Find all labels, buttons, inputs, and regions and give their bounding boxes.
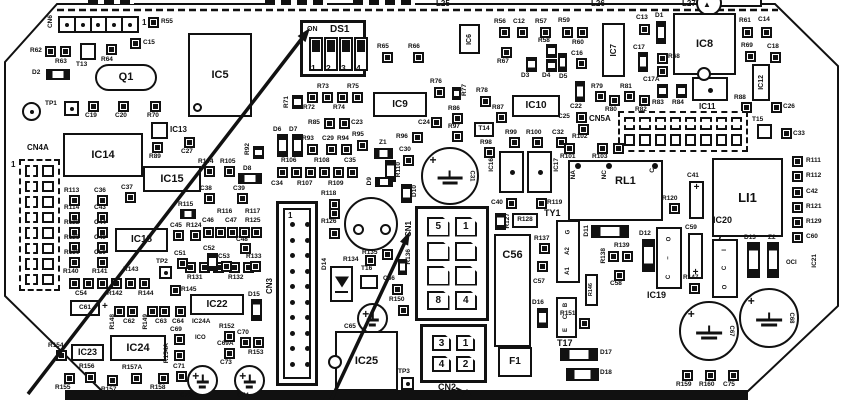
r129-label: R129 (806, 219, 822, 226)
r111 (792, 156, 803, 167)
c44-label: C44 (94, 220, 106, 227)
cn4a-pad-13 (25, 258, 38, 270)
r82-label: R82 (635, 107, 647, 114)
cn1-pin-6 (455, 266, 478, 286)
c17a-label: C17A (643, 77, 660, 84)
r142-label: R142 (107, 291, 123, 298)
r96 (412, 132, 423, 143)
r68-label: R68 (668, 54, 680, 61)
c42-label: C42 (806, 189, 818, 196)
tp2-label: TP2 (156, 259, 168, 266)
cn4a-pad-3 (25, 181, 38, 193)
rl1-na-label: NA (571, 170, 578, 179)
c71 (176, 371, 187, 382)
c57-label: C57 (533, 279, 545, 286)
r58-label: R58 (538, 38, 550, 45)
r71 (292, 95, 303, 109)
c15-label: C15 (143, 40, 155, 47)
cn1-pin-2: 1 (455, 217, 478, 237)
ic15: IC15 (143, 166, 201, 192)
r69 (745, 51, 756, 62)
ic8: IC8 (673, 13, 736, 75)
r70 (150, 101, 161, 112)
r75-label: R75 (347, 84, 359, 91)
r59 (562, 27, 573, 38)
c69-label: C69 (170, 327, 182, 334)
r111-label: R111 (806, 158, 821, 165)
blrow5 (175, 306, 186, 317)
r60 (577, 27, 588, 38)
ic19-pin-letter-3: C (666, 275, 672, 279)
cn1: 5184 (415, 206, 489, 321)
c35s (347, 167, 358, 178)
r86-label: R86 (448, 106, 460, 113)
c73 (224, 348, 235, 359)
r116-label: R116 (217, 209, 232, 216)
tp1 (22, 102, 41, 121)
cn1-pin-5 (427, 266, 450, 286)
c59-label: C59 (685, 225, 697, 232)
r93-label: R93 (302, 136, 314, 143)
c39-label: C39 (233, 186, 245, 193)
c62-label: C62 (123, 319, 135, 326)
r72 (307, 92, 318, 103)
tp2 (159, 266, 172, 279)
c50 (97, 257, 108, 268)
r56 (499, 27, 510, 38)
c65 (357, 303, 388, 334)
r74 (337, 92, 348, 103)
r107-label: R107 (297, 181, 313, 188)
r84 (676, 84, 687, 98)
c43-label: C43 (94, 205, 106, 212)
cn3-dot-4-1 (305, 284, 310, 289)
d6 (277, 134, 288, 157)
c45 (173, 230, 184, 241)
r147-label: R147 (683, 275, 699, 282)
cn4a-pad-2 (42, 165, 55, 177)
r136-label: R136 (406, 249, 413, 265)
c13 (639, 24, 650, 35)
d14 (330, 266, 353, 302)
cn5a-pad-3 (655, 117, 666, 130)
r67-label: R67 (497, 59, 509, 66)
d1 (656, 21, 666, 44)
r159-label: R159 (676, 382, 692, 389)
ds1-on-label: ON (307, 26, 318, 33)
r139 (622, 251, 633, 262)
cn4a-pad-7 (25, 212, 38, 224)
c24-label: C24 (418, 120, 430, 127)
r108b (333, 167, 344, 178)
c70-label: C70 (237, 330, 249, 337)
ty1-pin-letter-2: A2 (565, 248, 571, 256)
r129 (792, 217, 803, 228)
cn4a (19, 159, 60, 291)
mrow1 (203, 227, 214, 238)
cn4a-pad-16 (42, 274, 55, 286)
r147 (689, 283, 700, 294)
ic9-label: IC9 (392, 100, 408, 110)
c14-label: C14 (758, 17, 770, 24)
cn4a-pin1-label: 1 (11, 161, 15, 169)
ic14: IC14 (63, 133, 143, 177)
r101-label: R101 (560, 154, 576, 161)
c23-label: C23 (351, 120, 363, 127)
r67 (501, 47, 512, 58)
top-pads-left (88, 0, 134, 4)
ic5-label: IC5 (211, 70, 228, 81)
r57-label: R57 (535, 19, 547, 26)
cn3-dot-3-1 (305, 269, 310, 274)
d9-label: D9 (367, 177, 374, 185)
ic19: O–C (656, 227, 682, 289)
r148-label: R148 (110, 314, 117, 330)
d18 (566, 368, 599, 381)
r96-label: R96 (396, 134, 408, 141)
r94-label: R94 (337, 136, 349, 143)
ds1-title: DS1 (330, 24, 349, 35)
r78-label: R78 (476, 88, 488, 95)
r92 (253, 146, 264, 159)
c13-label: C13 (636, 15, 648, 22)
tp3 (401, 377, 414, 390)
r120 (669, 203, 680, 214)
ic20: ICO (712, 239, 738, 298)
r130 (69, 257, 80, 268)
r92-label: R92 (245, 143, 252, 155)
ic8-label: IC8 (696, 39, 713, 50)
r81-label: R81 (620, 84, 632, 91)
ic22: IC22 (190, 294, 244, 315)
r133 (250, 261, 261, 272)
d14-diode-icon (335, 277, 349, 288)
t17-label: T17 (557, 339, 573, 348)
c71-label: C71 (173, 364, 185, 371)
r146: R146 (585, 274, 598, 306)
ic18-label: IC18 (131, 235, 152, 245)
c47-label: C47 (225, 218, 237, 225)
lrow1 (69, 278, 80, 289)
c61-label: C61 (79, 305, 91, 312)
r65-label: R65 (377, 44, 389, 51)
d11-label: D11 (584, 225, 591, 237)
c38 (204, 193, 215, 204)
r141-label: R141 (92, 269, 108, 276)
q1: Q1 (95, 64, 157, 91)
r82 (639, 95, 650, 106)
ds1-num-1: 1 (311, 63, 316, 73)
ic15-label: IC15 (160, 174, 183, 185)
r95 (357, 140, 368, 151)
rl1-label: RL1 (615, 176, 636, 187)
cn5a-pad-4 (670, 117, 681, 130)
ic17 (527, 151, 552, 193)
bottom-bar (65, 390, 748, 400)
c48-label: C48 (236, 237, 248, 244)
cn3-dot-5-1 (305, 300, 310, 305)
r70-label: R70 (147, 113, 159, 120)
r135 (382, 249, 393, 260)
cn4a-pad-15 (25, 274, 38, 286)
i1-pin-left (353, 224, 364, 235)
ic7-label: IC7 (610, 44, 618, 56)
c34s (305, 167, 316, 178)
c35-label: C35 (344, 158, 356, 165)
r115 (180, 209, 196, 219)
r77-label: R77 (462, 84, 469, 96)
ic17-label: IC17 (554, 158, 561, 172)
c16 (576, 58, 587, 69)
ic13 (151, 122, 168, 139)
cn3-dot-1-1 (305, 238, 310, 243)
c58-label: C58 (610, 281, 622, 288)
cn4a-label: CN4A (27, 144, 49, 152)
r106b (291, 167, 302, 178)
r157a (131, 373, 142, 384)
t14: T14 (474, 122, 494, 137)
c27-label: C27 (181, 149, 193, 156)
cn3-dot-1-0 (290, 238, 295, 243)
ic24: IC24 (110, 335, 166, 361)
ic21: OCI (786, 251, 812, 277)
ic25-label: IC25 (355, 356, 378, 367)
cn2-conn-pin-2: 1 (456, 335, 475, 351)
r152-label: R152 (219, 324, 235, 331)
mrow2 (215, 227, 226, 238)
t13 (80, 43, 96, 60)
r55 (148, 17, 159, 28)
c41 (689, 181, 704, 219)
cn5a-pad-7 (716, 117, 727, 130)
cn4a-pad-10 (42, 227, 55, 239)
ic13-label: IC13 (170, 126, 187, 134)
r97 (452, 131, 463, 142)
cn6-pin-2 (76, 18, 92, 31)
c31: C31 (421, 147, 479, 205)
cn5a-pad-6 (700, 117, 711, 130)
r109-label: R109 (328, 181, 344, 188)
cn3-dot-2-1 (305, 253, 310, 258)
ic6: IC6 (459, 24, 480, 54)
r104-label: R104 (198, 159, 214, 166)
r83-label: R83 (652, 100, 664, 107)
r99-label: R99 (505, 130, 517, 137)
c14 (761, 27, 772, 38)
cn3-dot-4-0 (290, 284, 295, 289)
d15 (251, 299, 262, 321)
d9 (375, 177, 393, 187)
c22 (575, 81, 585, 102)
r135-label: R135 (362, 250, 378, 257)
c51-label: C51 (174, 251, 186, 258)
cn1-label: CN1 (405, 221, 413, 237)
c39 (237, 193, 248, 204)
r157a-label: R157A (122, 365, 142, 372)
r114-label: R114 (64, 205, 79, 212)
lrow2 (83, 278, 94, 289)
z1-label: Z1 (379, 140, 387, 147)
cn3-dot-9-1 (305, 362, 310, 367)
ic6-label: IC6 (466, 34, 473, 45)
l25-label: L25 (436, 0, 450, 8)
ic11 (692, 77, 728, 101)
d5 (558, 53, 567, 72)
d4-label: D4 (542, 73, 550, 80)
sq-x1 (613, 143, 624, 154)
rl1-nc-label: NC (602, 170, 609, 179)
r65 (382, 52, 393, 63)
c29-label: C29 (322, 136, 334, 143)
cn1-pin-7-label: 8 (435, 295, 441, 306)
cn5a-pad-11 (655, 134, 666, 147)
cn4a-pad-6 (42, 196, 55, 208)
c23 (339, 118, 350, 129)
ic19-label: IC19 (647, 291, 666, 300)
c57 (537, 261, 548, 272)
r85-label: R85 (308, 120, 320, 127)
c72-label: C72 (180, 393, 192, 400)
r138-label: R138 (601, 248, 608, 264)
r77 (452, 87, 461, 100)
r137-label: R137 (534, 236, 550, 243)
cn5a-pad-8 (731, 117, 742, 130)
r157 (107, 375, 118, 386)
cn6-pin-4 (107, 18, 123, 31)
r113-label: R113 (64, 188, 79, 195)
ic18: IC18 (115, 228, 168, 252)
blrow4 (159, 306, 170, 317)
r121-label: R121 (806, 204, 822, 211)
cn1-pin-1: 5 (427, 217, 450, 237)
cn4a-pad-4 (42, 181, 55, 193)
c60 (792, 232, 803, 243)
cn3-dot-8-0 (290, 346, 295, 351)
r128-label: R128 (517, 217, 533, 224)
r88-label: R88 (734, 95, 746, 102)
cn6-pin-3 (92, 18, 108, 31)
c33 (781, 128, 792, 139)
d18-label: D18 (600, 370, 612, 377)
tp1-label: TP1 (45, 101, 57, 108)
cn5a (618, 111, 748, 152)
t16 (360, 275, 378, 289)
r128: R128 (512, 213, 538, 228)
rl1-pin-nc (606, 163, 612, 169)
r89-label: R89 (149, 154, 161, 161)
cn4a-pad-14 (42, 258, 55, 270)
pcb-board: L25L26L27▲CN61R55C15R62R63T13R64D2Q1TP1C… (0, 0, 841, 400)
ic12-label: IC12 (758, 75, 765, 90)
ty1-pin-letter-1: G (565, 229, 571, 234)
c50-label: C50 (94, 250, 106, 257)
r56-label: R56 (494, 19, 506, 26)
cn3-dot-8-1 (305, 346, 310, 351)
c18 (770, 52, 781, 63)
cn5a-pad-10 (639, 134, 650, 147)
c63-label: C63 (155, 319, 167, 326)
cn3-dot-2-0 (290, 253, 295, 258)
lrow5 (125, 278, 136, 289)
c26 (771, 102, 782, 113)
r112-label: R112 (806, 173, 821, 180)
ic23: IC23 (71, 344, 104, 361)
t17-pin-letter-3: E (563, 328, 569, 332)
r71-label: R71 (284, 96, 291, 108)
l27-label: L27 (682, 0, 696, 8)
d1-label: D1 (655, 13, 663, 20)
cn2-conn-pin-4-label: 2 (463, 359, 469, 370)
q1-label: Q1 (119, 72, 134, 83)
r155-label: R155 (55, 385, 71, 392)
c59 (688, 233, 703, 279)
ic22-label: IC22 (206, 300, 227, 310)
r160 (705, 370, 716, 381)
c25 (576, 112, 587, 123)
cn1-pin-4 (455, 242, 478, 262)
c31-label: C31 (468, 170, 474, 181)
c37-label: C37 (121, 185, 133, 192)
r89 (152, 142, 163, 153)
cn3-dot-5-0 (290, 300, 295, 305)
ic19-pin-letter-2: – (666, 256, 672, 259)
cn1-pin-1-label: 5 (435, 221, 441, 232)
cn4a-pad-5 (25, 196, 38, 208)
r105 (224, 166, 235, 177)
c67: C67 (679, 301, 739, 361)
r55-label: R55 (161, 19, 173, 26)
r151-label: R151 (560, 311, 576, 318)
c53-label: C53 (218, 254, 230, 261)
ic25: IC25 (335, 331, 398, 391)
r137 (539, 243, 550, 254)
c18-label: C18 (767, 44, 779, 51)
cn3-dot-7-1 (305, 331, 310, 336)
r80-label: R80 (605, 107, 617, 114)
r103-label: R103 (592, 154, 608, 161)
c27 (184, 137, 195, 148)
c19-label: C19 (85, 113, 97, 120)
r158-label: R158 (150, 385, 166, 392)
r58 (546, 44, 557, 58)
r146-label: R146 (589, 283, 595, 296)
r153-label: R153 (248, 350, 264, 357)
r75 (352, 92, 363, 103)
cn6-label: CN6 (48, 15, 55, 28)
cn2-conn-pin-1-label: 3 (439, 338, 445, 349)
r69-label: R69 (741, 43, 753, 50)
d12 (642, 239, 655, 272)
r139-label: R139 (614, 243, 630, 250)
r112 (792, 171, 803, 182)
t14-label: T14 (478, 126, 489, 133)
r123-label: R123 (64, 235, 80, 242)
t17-pin-letter-1: B (564, 303, 570, 307)
r155 (64, 373, 75, 384)
r98-label: R98 (480, 140, 492, 147)
c68-label: C68 (788, 312, 794, 323)
c54-label: C54 (75, 291, 87, 298)
ic20-pin-letter-1: I (722, 249, 728, 251)
d12-label: D12 (639, 231, 651, 238)
t15-label: T15 (752, 117, 763, 124)
d14-label: D14 (322, 258, 329, 270)
r138 (608, 251, 619, 262)
cn1-pin-3 (427, 242, 450, 262)
r143-label: R143 (123, 267, 139, 274)
r87 (496, 112, 507, 123)
li1: LI1 (712, 158, 783, 237)
